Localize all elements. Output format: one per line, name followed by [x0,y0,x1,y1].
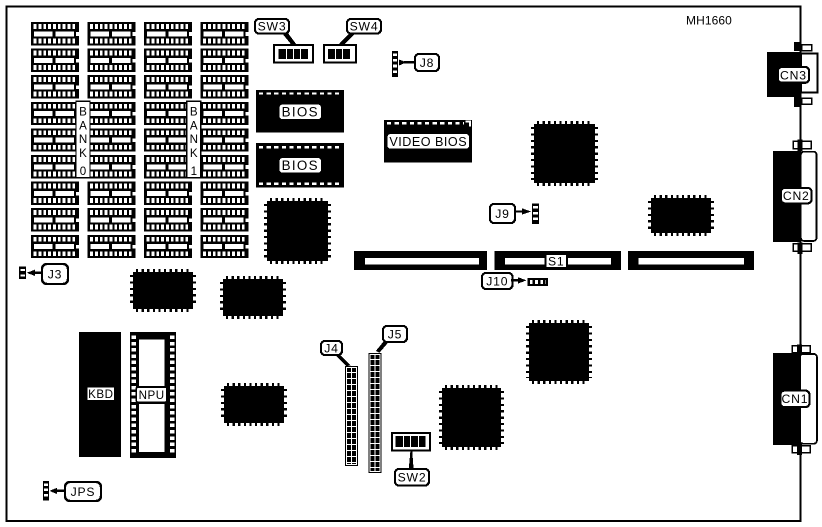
svg-text:B: B [79,106,87,119]
svg-text:KBD: KBD [88,388,113,401]
svg-text:SW3: SW3 [258,20,287,34]
svg-text:B: B [190,106,198,119]
svg-text:NPU: NPU [139,389,165,402]
svg-text:BIOS: BIOS [282,158,319,173]
svg-text:SW4: SW4 [350,20,379,34]
svg-text:J10: J10 [486,274,508,288]
svg-text:MH1660: MH1660 [686,14,732,28]
svg-text:J4: J4 [324,341,338,355]
svg-text:0: 0 [80,165,86,178]
svg-text:JPS: JPS [71,485,96,499]
svg-text:BIOS: BIOS [282,105,319,120]
svg-text:SW2: SW2 [398,471,427,485]
svg-text:J9: J9 [495,207,509,221]
svg-text:1: 1 [191,165,197,178]
svg-text:VIDEO BIOS: VIDEO BIOS [389,135,467,149]
svg-text:K: K [190,147,198,160]
svg-text:J8: J8 [420,56,434,70]
svg-text:J3: J3 [48,267,62,281]
svg-text:A: A [190,120,198,133]
svg-text:CN1: CN1 [782,392,809,406]
svg-text:S1: S1 [548,254,565,268]
svg-text:J5: J5 [388,327,402,341]
svg-text:CN3: CN3 [780,68,807,82]
svg-text:A: A [79,120,87,133]
svg-text:K: K [79,147,87,160]
svg-text:CN2: CN2 [783,189,810,203]
svg-text:N: N [79,133,87,146]
svg-text:N: N [190,133,198,146]
